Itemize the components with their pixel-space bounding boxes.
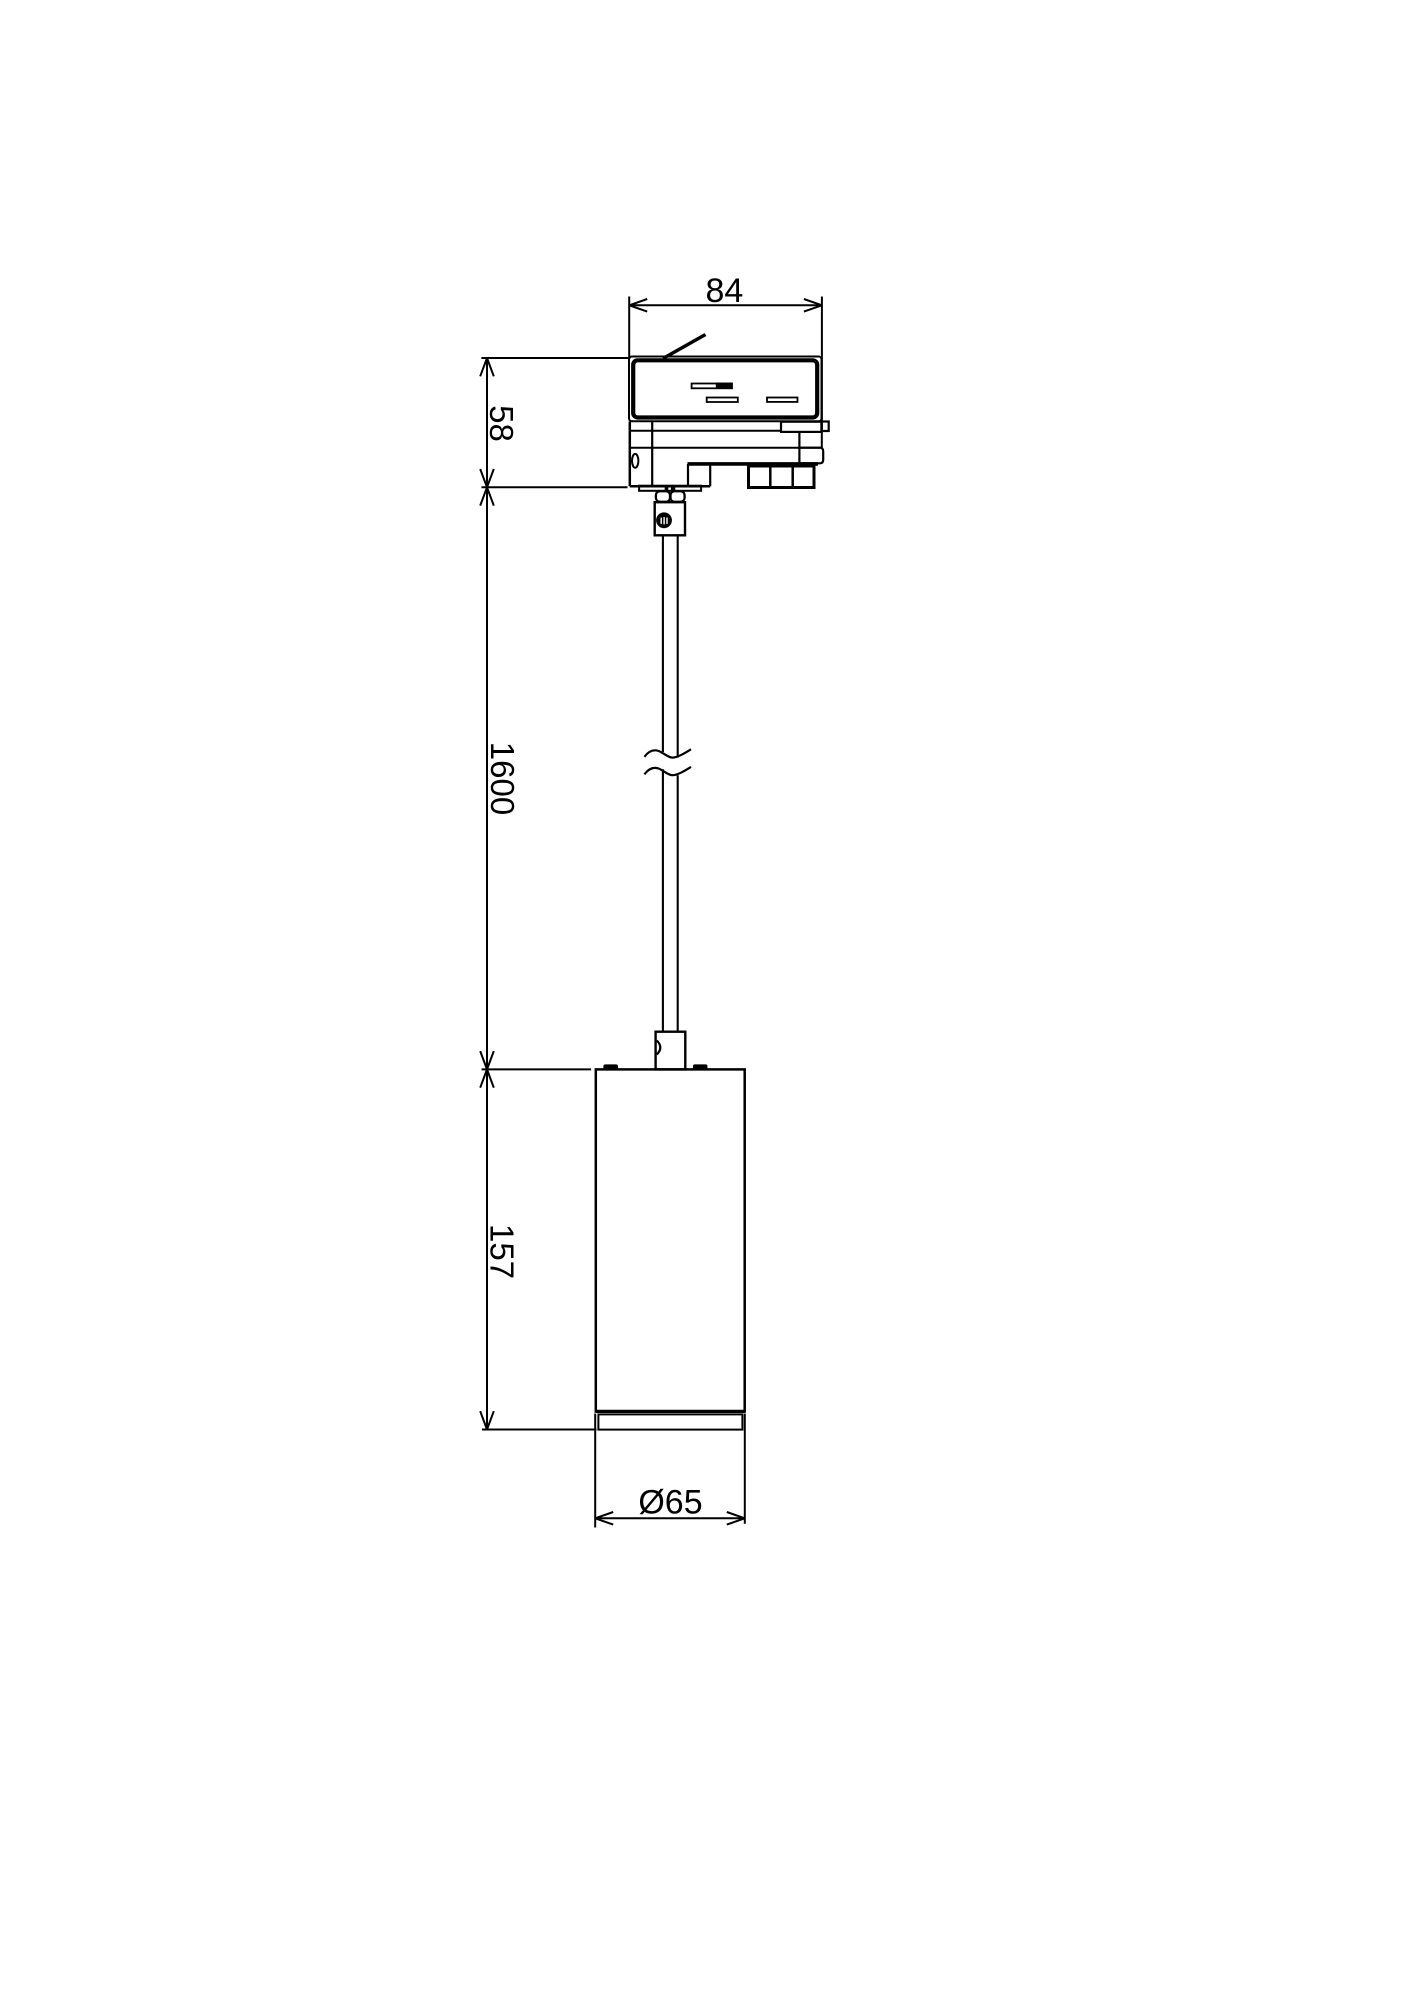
- svg-text:Ø65: Ø65: [638, 1483, 702, 1521]
- svg-text:58: 58: [483, 405, 520, 442]
- svg-text:1600: 1600: [484, 742, 521, 815]
- svg-text:84: 84: [705, 272, 743, 310]
- svg-text:157: 157: [484, 1224, 521, 1279]
